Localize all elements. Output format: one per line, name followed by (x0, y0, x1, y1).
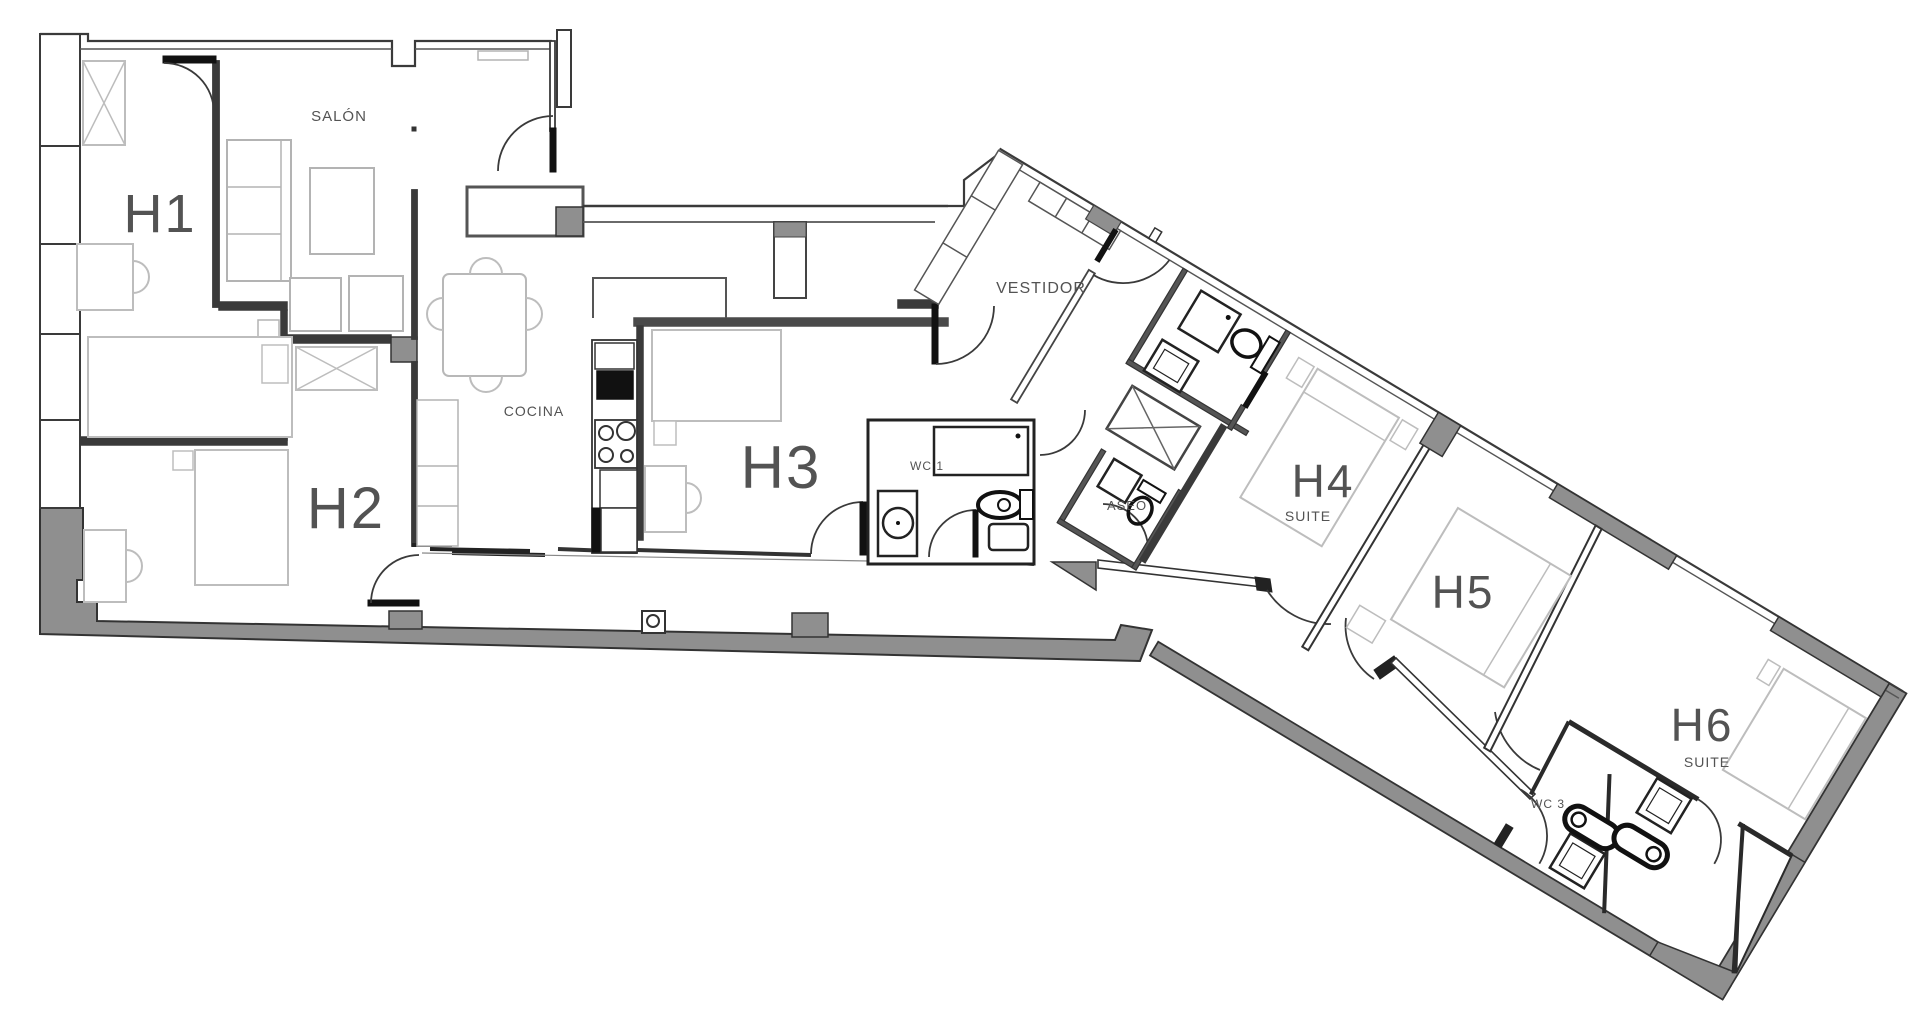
svg-text:H5: H5 (1432, 566, 1495, 618)
svg-text:SUITE: SUITE (1684, 754, 1730, 770)
svg-text:ASEO: ASEO (1107, 498, 1147, 513)
svg-text:H1: H1 (123, 184, 196, 244)
svg-text:SALÓN: SALÓN (311, 108, 367, 125)
svg-text:H4: H4 (1292, 455, 1355, 507)
svg-text:WC 3: WC 3 (1531, 797, 1565, 811)
svg-text:WC 1: WC 1 (910, 459, 944, 473)
svg-text:COCINA: COCINA (504, 403, 564, 419)
svg-text:VESTIDOR: VESTIDOR (996, 280, 1086, 297)
svg-text:H6: H6 (1671, 699, 1734, 751)
svg-text:SUITE: SUITE (1285, 508, 1331, 524)
svg-text:H3: H3 (741, 434, 822, 501)
svg-text:H2: H2 (307, 476, 385, 541)
